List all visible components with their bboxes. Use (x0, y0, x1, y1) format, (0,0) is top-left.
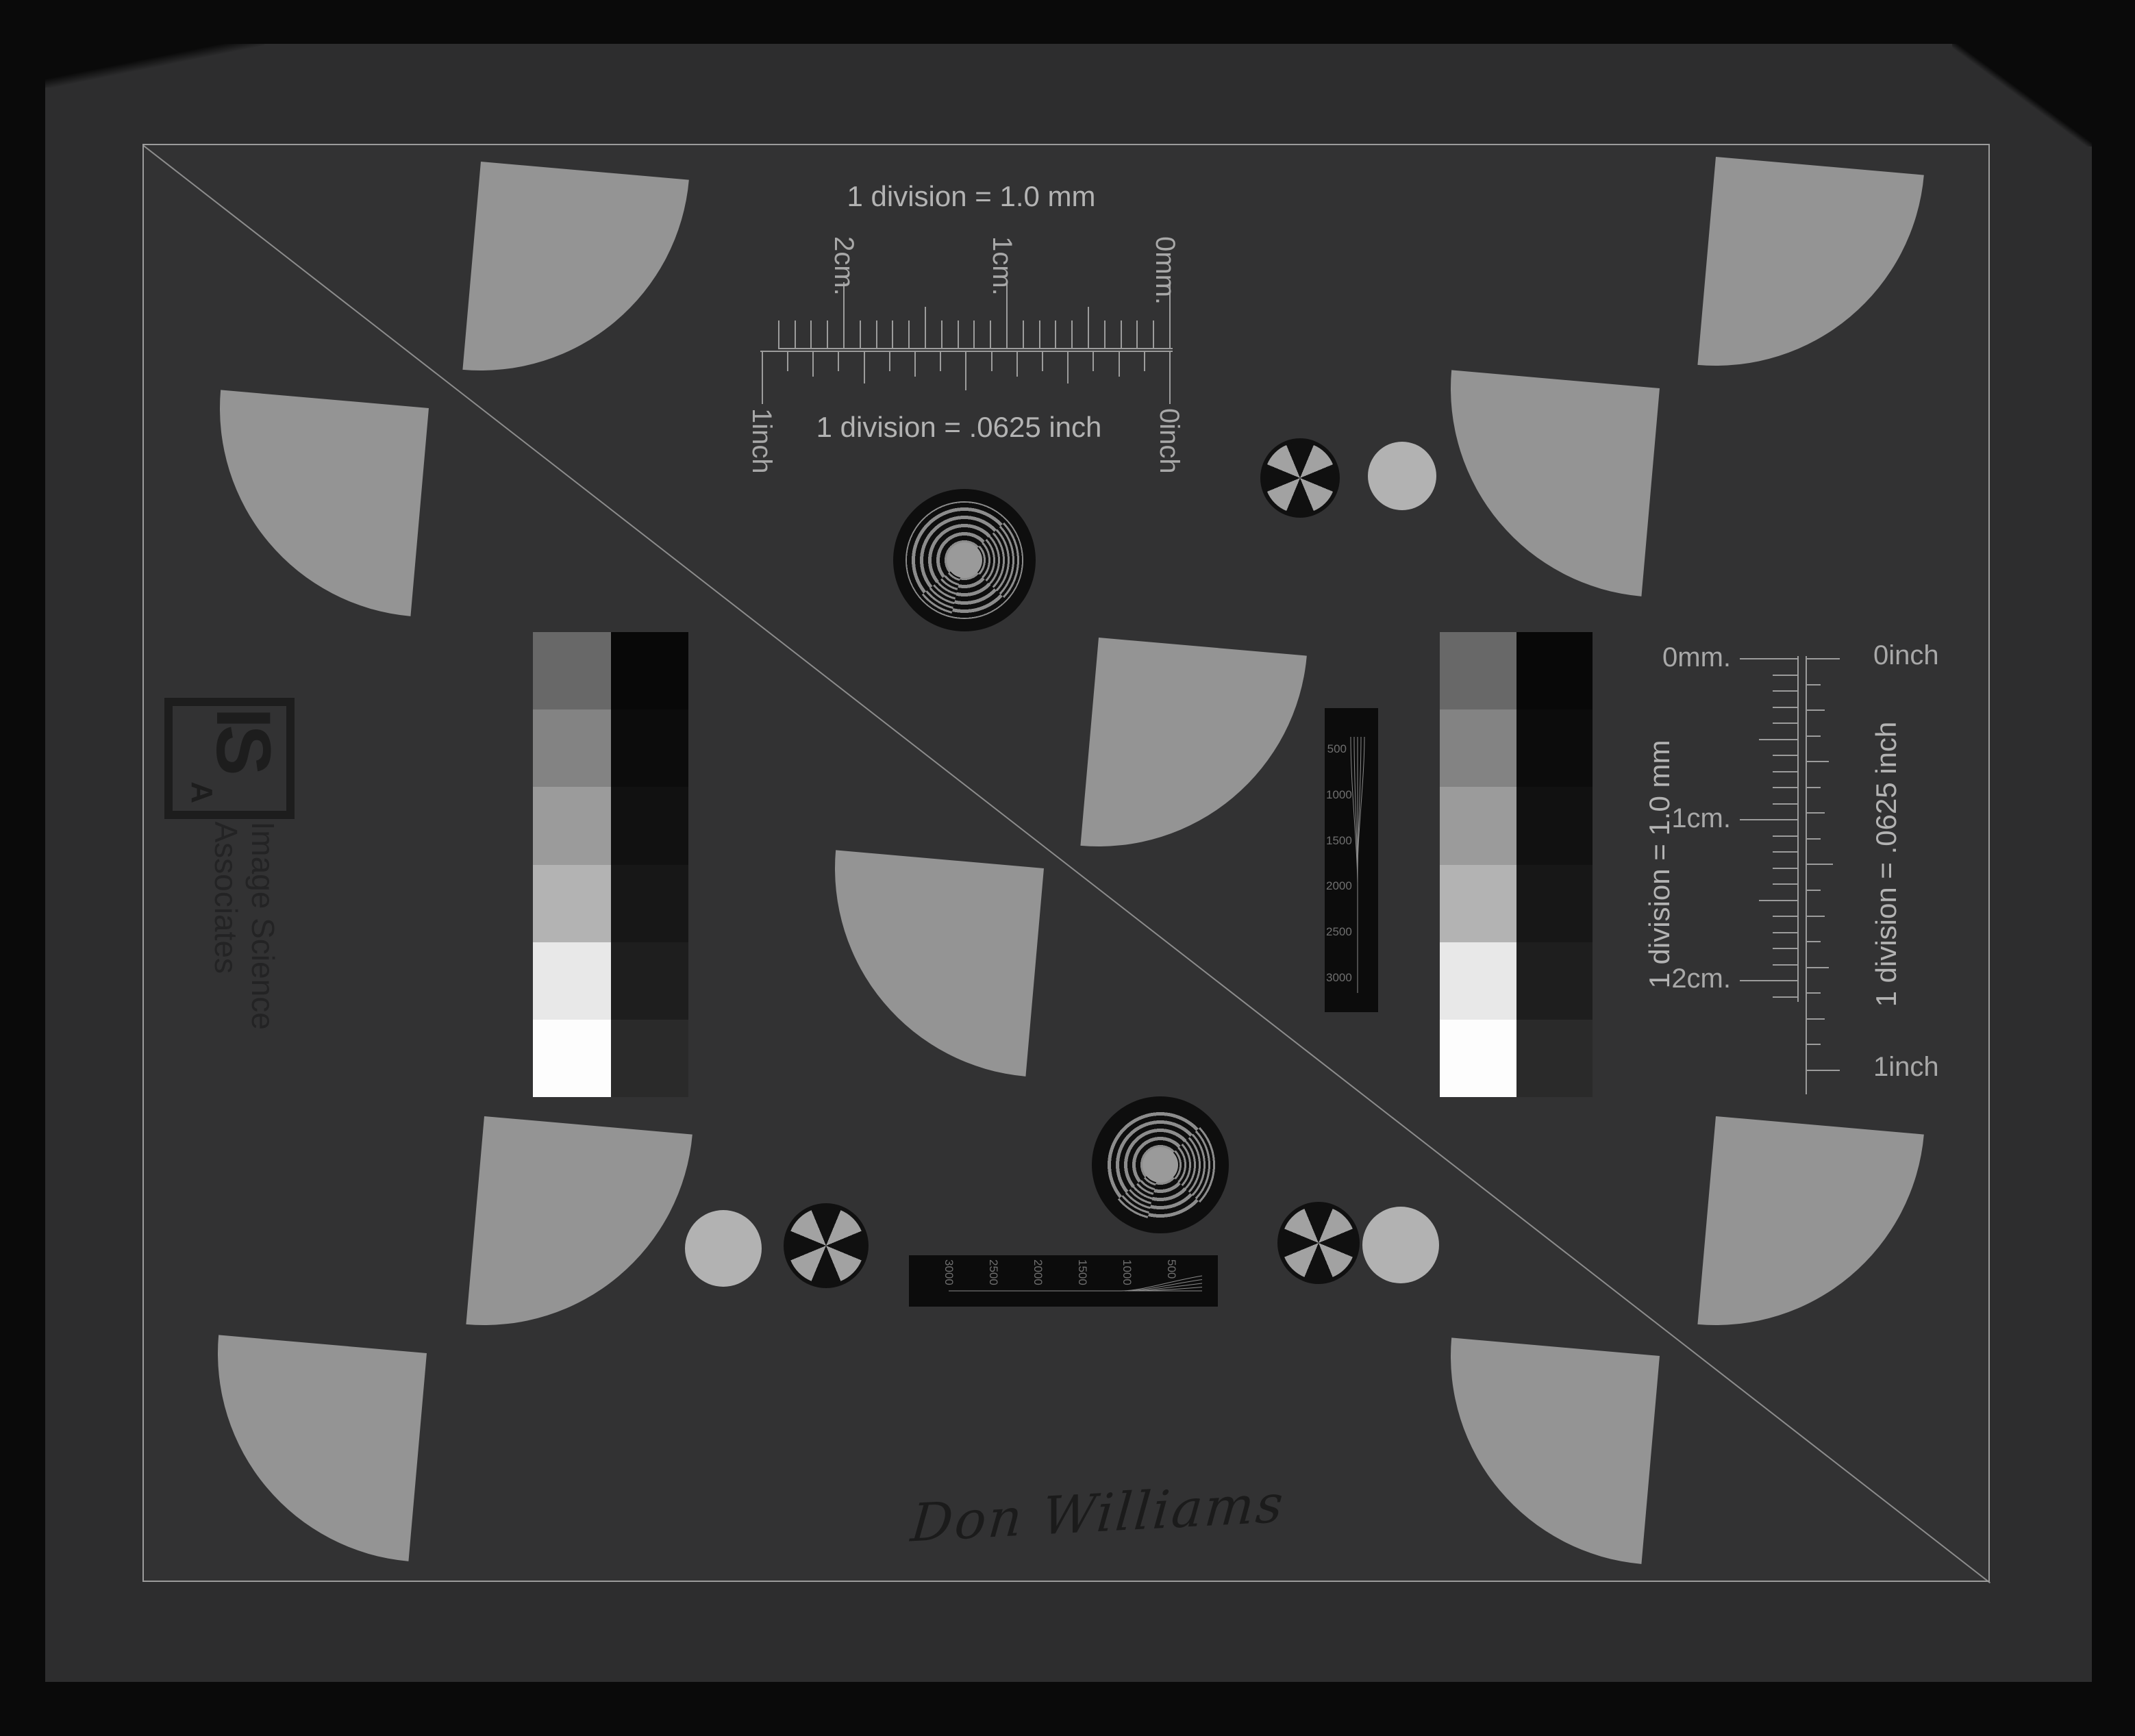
ruler-tick (838, 352, 839, 371)
resolution-label: 2500 (986, 1259, 1000, 1285)
step-wedge-patch (1516, 787, 1593, 864)
isa-logo: IS A (164, 698, 295, 819)
company-name: Image Science Associates (208, 822, 282, 1058)
ruler-tick (864, 352, 865, 383)
ruler-label-1inch: 1inch (746, 408, 777, 474)
ruler-tick (1773, 964, 1797, 966)
ruler-label-2cm: 2cm. (1621, 964, 1731, 994)
ruler-tick (1807, 890, 1821, 891)
step-wedge-patch (1516, 865, 1593, 942)
resolution-label: 2500 (1326, 925, 1347, 939)
ruler-tick (827, 320, 828, 348)
isa-logo-initials: IS A (184, 707, 275, 810)
ruler-tick (787, 352, 788, 371)
ruler-tick (1136, 320, 1138, 348)
ruler-tick (1119, 352, 1120, 377)
resolution-label: 1000 (1326, 788, 1347, 802)
ruler-tick (958, 320, 959, 348)
ruler-tick (1104, 320, 1106, 348)
resolution-label: 2000 (1326, 879, 1347, 893)
ruler-tick (810, 320, 812, 348)
ruler-tick (925, 307, 926, 348)
company-name-line1: Image Science (245, 822, 282, 1058)
ruler-tick (1773, 916, 1797, 917)
resolution-wedge-vertical: 50010001500200025003000 (1325, 708, 1378, 1012)
ruler-tick (1773, 883, 1797, 885)
ruler-tick (1153, 320, 1154, 348)
ruler-tick (1807, 735, 1821, 737)
step-wedge-patch (1516, 709, 1593, 787)
step-wedge-patch (1440, 1020, 1516, 1097)
ruler-tick (1067, 352, 1069, 383)
company-name-line2: Associates (208, 822, 245, 1058)
ruler-tick (1121, 320, 1122, 348)
ruler-tick (1071, 320, 1073, 348)
step-wedge-column (1516, 632, 1593, 1097)
step-wedge-patch (533, 1020, 611, 1097)
ruler-tick (1807, 838, 1821, 840)
ruler-tick (965, 352, 966, 390)
step-wedge-patch (611, 787, 689, 864)
ruler-tick (1740, 819, 1797, 820)
resolution-label: 1000 (1120, 1259, 1134, 1285)
resolution-label: 3000 (942, 1259, 956, 1285)
logo-initials-main: IS (212, 707, 275, 810)
ruler-tick (1759, 900, 1797, 901)
ruler-tick (1016, 352, 1018, 377)
step-wedge-column (611, 632, 689, 1097)
resolution-label: 500 (1326, 742, 1347, 756)
step-wedge-patch (1516, 632, 1593, 709)
ruler-tick (860, 320, 861, 348)
resolution-label: 3000 (1326, 971, 1347, 985)
step-wedge-patch (533, 632, 611, 709)
step-wedge-patch (611, 632, 689, 709)
ruler-tick (795, 320, 796, 348)
ruler-tick (1039, 320, 1040, 348)
step-wedge-patch (611, 1020, 689, 1097)
ruler-label-2cm: 2cm. (828, 236, 859, 296)
ruler-tick (1773, 835, 1797, 837)
ruler-tick (941, 320, 942, 348)
sector-star-target (1260, 438, 1340, 518)
ruler-tick (1144, 352, 1145, 371)
ruler-tick (1773, 868, 1797, 869)
ruler-tick (1773, 948, 1797, 949)
ruler-label-1cm: 1cm. (986, 236, 1017, 296)
resolution-label: 2000 (1031, 1259, 1045, 1285)
ruler-tick (1740, 658, 1797, 659)
step-wedge-patch (1440, 865, 1516, 942)
ruler-caption: 1 division = .0625 inch (1870, 722, 1903, 1007)
ruler-tick (1740, 980, 1797, 981)
ruler-tick (889, 352, 890, 371)
ruler-label-0mm: 0mm. (1149, 236, 1180, 305)
ruler-caption: 1 division = 1.0 mm (1643, 740, 1676, 989)
scan-corner-artifact (1952, 44, 2092, 147)
ruler-tick (1807, 684, 1821, 685)
resolution-label: 1500 (1326, 834, 1347, 848)
ruler-tick (1807, 941, 1821, 942)
resolution-label: 1500 (1075, 1259, 1089, 1285)
ruler-tick (908, 320, 910, 348)
step-wedge-patch (533, 942, 611, 1020)
grayscale-step-wedge (533, 632, 688, 1097)
step-wedge-column (533, 632, 611, 1097)
ruler-tick (812, 352, 814, 377)
target-center-dot (947, 542, 982, 578)
ruler-tick (991, 352, 992, 371)
ruler-tick (1807, 658, 1840, 659)
ruler-tick (1807, 709, 1825, 711)
ruler-tick (1807, 1044, 1821, 1045)
ruler-tick (1807, 864, 1833, 865)
step-wedge-patch (533, 709, 611, 787)
ruler-tick (762, 352, 763, 404)
step-wedge-patch (1440, 787, 1516, 864)
ruler-tick (1807, 761, 1829, 762)
right-millimeter-ruler (1738, 656, 1799, 1002)
sector-star-target (784, 1203, 869, 1288)
ruler-tick (973, 320, 975, 348)
ruler-tick (1773, 707, 1797, 708)
step-wedge-patch (611, 865, 689, 942)
gray-dot-patch (1362, 1207, 1439, 1283)
ruler-tick (1093, 352, 1094, 371)
ruler-tick (1773, 803, 1797, 805)
ruler-tick (1807, 1070, 1840, 1071)
ruler-label-0mm: 0mm. (1621, 642, 1731, 673)
gray-dot-patch (685, 1210, 762, 1287)
step-wedge-patch (1440, 709, 1516, 787)
top-inch-ruler (760, 351, 1173, 405)
ruler-tick (1773, 996, 1797, 998)
ruler-label-0inch: 0inch (1873, 640, 1939, 671)
ruler-tick (1042, 352, 1043, 371)
ruler-tick (1773, 722, 1797, 724)
step-wedge-patch (533, 787, 611, 864)
right-inch-ruler (1806, 656, 1841, 1094)
scanned-test-chart: 1 division = 1.0 mm 2cm. 1cm. 0mm. 1 div… (0, 0, 2135, 1736)
ruler-tick (1759, 739, 1797, 740)
resolution-wedge-horizontal: 30002500200015001000500 (909, 1255, 1218, 1307)
step-wedge-patch (533, 865, 611, 942)
sector-star-target (1277, 1202, 1360, 1284)
ruler-caption: 1 division = 1.0 mm (847, 180, 1096, 213)
ruler-label-0inch: 0inch (1153, 408, 1184, 474)
ruler-label-1cm: 1cm. (1621, 803, 1731, 834)
step-wedge-patch (1516, 1020, 1593, 1097)
ring-frequency-target (893, 489, 1036, 631)
ruler-tick (1773, 787, 1797, 788)
ruler-tick (1023, 320, 1024, 348)
scan-corner-artifact (45, 44, 264, 88)
ruler-tick (1773, 851, 1797, 853)
ruler-tick (1169, 352, 1171, 404)
ruler-caption: 1 division = .0625 inch (816, 411, 1102, 444)
ruler-tick (1055, 320, 1056, 348)
ruler-label-1inch: 1inch (1873, 1052, 1939, 1083)
ruler-tick (940, 352, 941, 371)
ruler-tick (1807, 992, 1821, 994)
ring-frequency-target (1092, 1096, 1229, 1233)
ruler-tick (1807, 916, 1825, 917)
step-wedge-patch (1440, 632, 1516, 709)
ruler-tick (1773, 690, 1797, 692)
grayscale-step-wedge (1440, 632, 1593, 1097)
ruler-tick (778, 320, 779, 348)
ruler-tick (1807, 787, 1821, 788)
step-wedge-column (1440, 632, 1516, 1097)
resolution-label: 500 (1164, 1259, 1178, 1279)
ruler-tick (1088, 307, 1089, 348)
ruler-tick (914, 352, 916, 377)
ruler-tick (1773, 675, 1797, 676)
ruler-tick (876, 320, 877, 348)
ruler-tick (1773, 755, 1797, 756)
ruler-tick (1807, 1018, 1825, 1020)
step-wedge-patch (611, 709, 689, 787)
step-wedge-patch (611, 942, 689, 1020)
ruler-tick (1773, 771, 1797, 772)
ruler-tick (1807, 967, 1829, 968)
step-wedge-patch (1440, 942, 1516, 1020)
step-wedge-patch (1516, 942, 1593, 1020)
target-center-dot (1143, 1147, 1178, 1183)
ruler-tick (1773, 932, 1797, 933)
ruler-tick (1807, 812, 1825, 814)
ruler-tick (892, 320, 893, 348)
ruler-tick (990, 320, 991, 348)
gray-dot-patch (1368, 442, 1436, 510)
